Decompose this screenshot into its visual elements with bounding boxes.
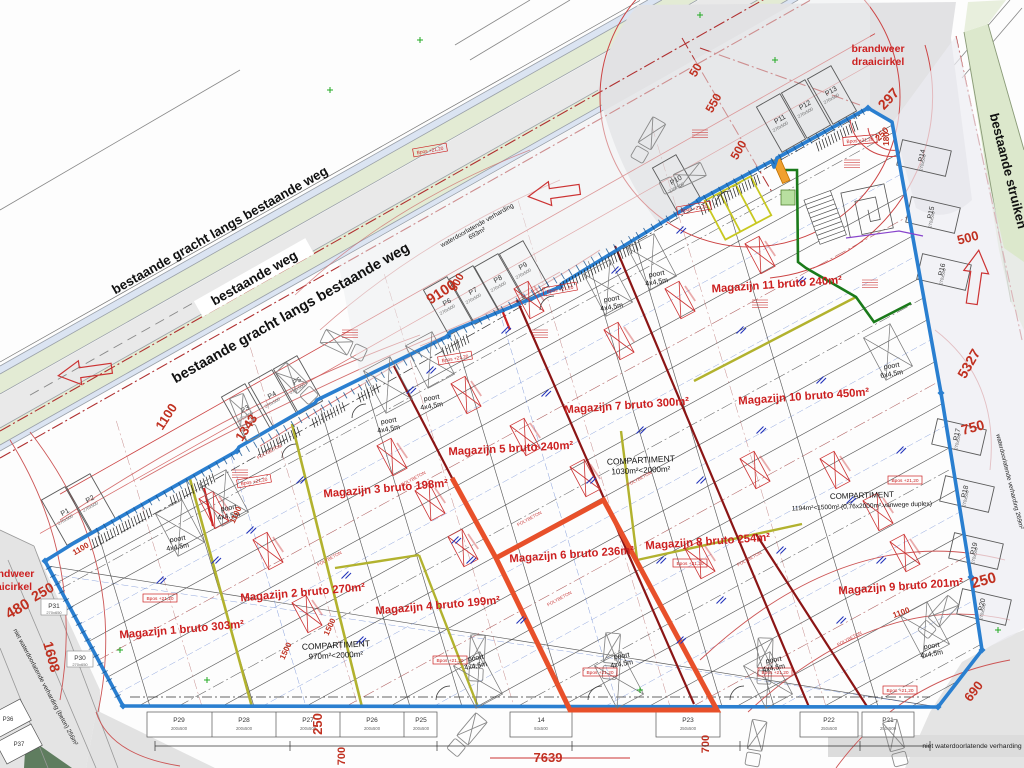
svg-text:93x500: 93x500 [534,726,548,731]
svg-text:P22: P22 [823,717,835,724]
svg-text:Bpos +21,20: Bpos +21,20 [586,670,613,676]
svg-text:200x500: 200x500 [413,726,430,731]
svg-text:brandweer: brandweer [851,43,904,55]
svg-text:270x650: 270x650 [46,610,62,615]
svg-text:Bpos +21,20: Bpos +21,20 [891,478,918,484]
svg-text:draaicirkel: draaicirkel [852,56,905,68]
svg-text:niet waterdoorlatende verhardi: niet waterdoorlatende verharding [922,743,1022,750]
svg-text:P31: P31 [48,603,60,610]
svg-text:P26: P26 [366,717,378,724]
svg-text:ndweer: ndweer [0,568,34,580]
svg-text:200x500: 200x500 [171,726,188,731]
svg-text:200x500: 200x500 [364,726,381,731]
svg-text:700: 700 [700,735,712,753]
svg-text:P37: P37 [14,742,25,748]
svg-text:7639: 7639 [534,750,563,765]
svg-text:P29: P29 [173,717,185,724]
svg-text:Bpos +21,20: Bpos +21,20 [886,688,913,694]
svg-text:P30: P30 [74,655,86,662]
svg-text:aicirkel: aicirkel [0,581,32,593]
svg-text:250x500: 250x500 [821,726,838,731]
svg-text:P36: P36 [3,717,14,723]
svg-text:700: 700 [336,747,348,765]
svg-text:250: 250 [310,713,325,735]
svg-text:270x650: 270x650 [72,662,88,667]
svg-text:250x500: 250x500 [680,726,697,731]
svg-text:P23: P23 [682,717,694,724]
svg-text:P25: P25 [415,717,427,724]
svg-text:Bpos +21,20: Bpos +21,20 [146,596,173,602]
svg-text:Bpos +21,20: Bpos +21,20 [676,561,703,567]
svg-text:Bpos +21,20: Bpos +21,20 [436,658,463,664]
svg-text:250x500: 250x500 [880,726,897,731]
svg-text:200x500: 200x500 [236,726,253,731]
svg-text:P28: P28 [238,717,250,724]
svg-text:14: 14 [537,717,545,724]
